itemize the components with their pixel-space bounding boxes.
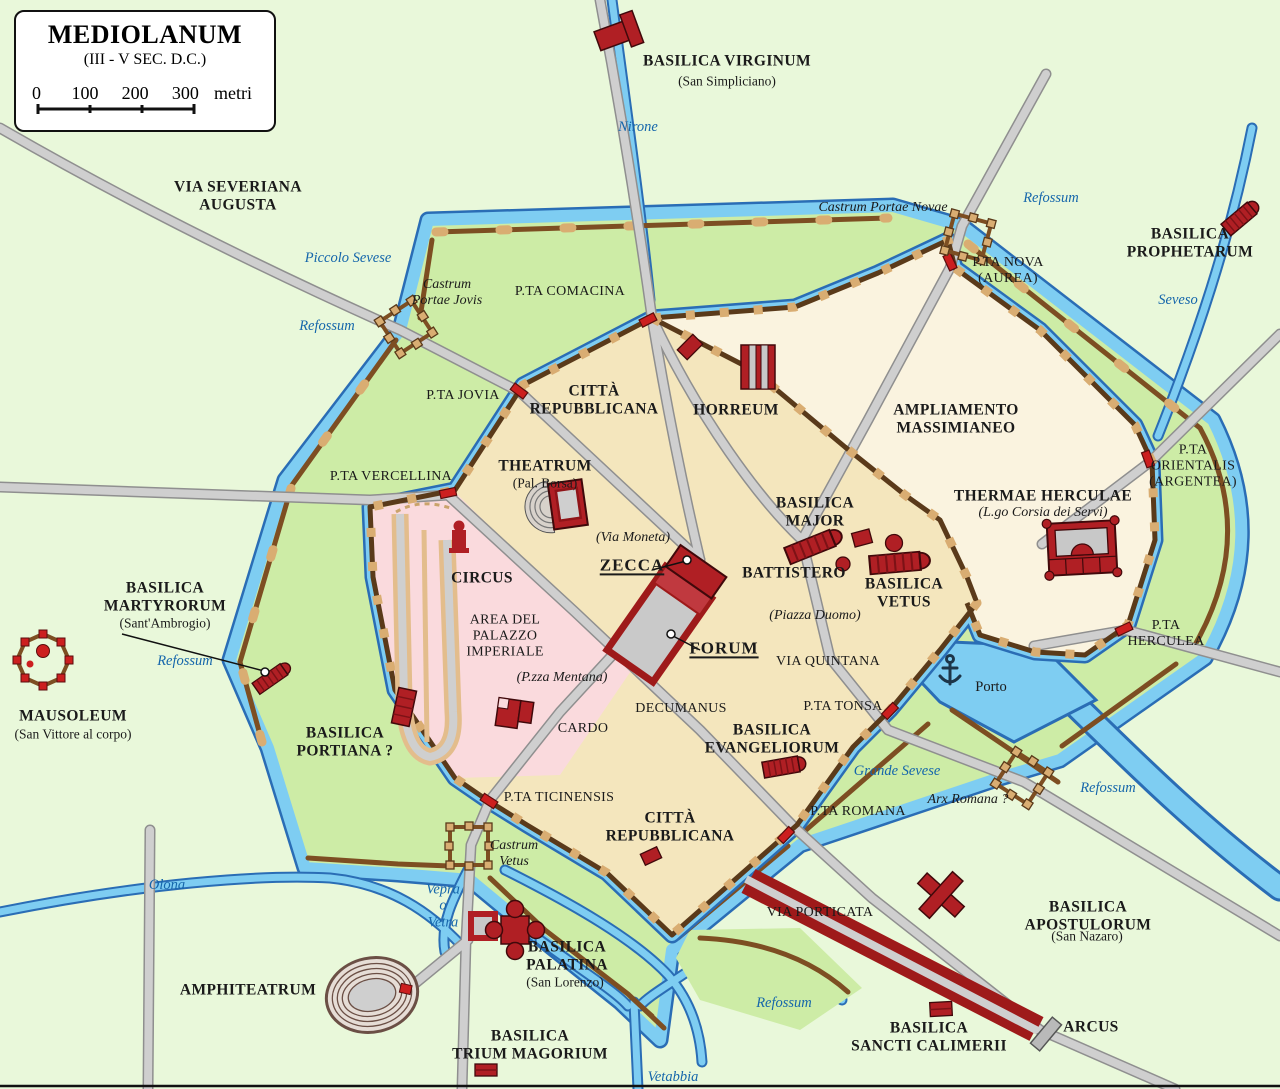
thermae-herculae-building — [1042, 516, 1122, 581]
basilica-sancti-calimerii-building — [930, 1001, 953, 1016]
legend-subtitle: (III - V SEC. D.C.) — [16, 51, 274, 69]
scale-bar — [34, 104, 234, 116]
scale-numbers: 0100200300metri — [32, 83, 252, 104]
mediolanum-map: BASILICA VIRGINUM(San Simpliciano)Nirone… — [0, 0, 1280, 1089]
legend-box: MEDIOLANUM (III - V SEC. D.C.) 010020030… — [14, 10, 276, 132]
basilica-trium-magorium-building — [475, 1064, 497, 1076]
map-canvas — [0, 0, 1280, 1089]
scale-tick-200: 200 — [122, 83, 172, 104]
scale-unit: metri — [214, 83, 252, 104]
scale-tick-0: 0 — [32, 83, 71, 104]
horreum-building — [741, 345, 775, 389]
legend-title: MEDIOLANUM — [16, 20, 274, 50]
scale-tick-100: 100 — [71, 83, 121, 104]
